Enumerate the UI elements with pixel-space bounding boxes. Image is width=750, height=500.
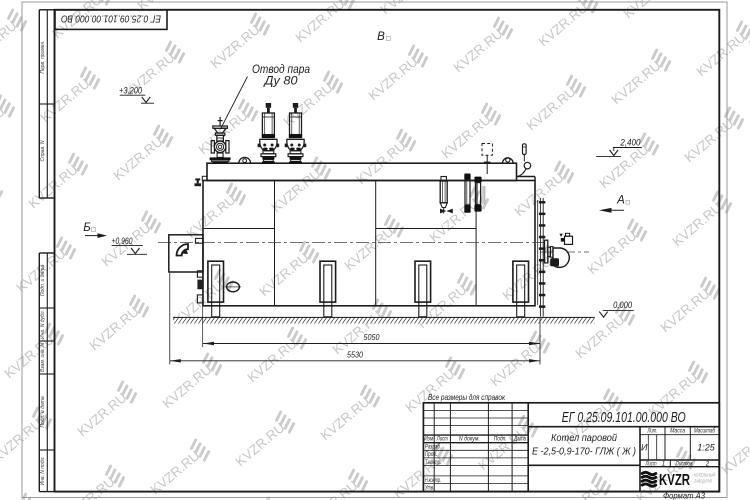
svg-text:KVZR.RU: KVZR.RU (403, 366, 458, 416)
svg-text:KVZR.RU: KVZR.RU (609, 58, 664, 108)
svg-text:Взам. инв. N: Взам. инв. N (40, 343, 46, 373)
svg-text:KVZR.RU: KVZR.RU (488, 340, 543, 390)
svg-text:KVZR.RU: KVZR.RU (585, 228, 640, 278)
svg-text:KVZR.RU: KVZR.RU (38, 76, 93, 126)
svg-text:KVZR.RU: KVZR.RU (719, 428, 750, 478)
svg-text:Е -2,5-0,9-170- ГЛЖ ( Ж ): Е -2,5-0,9-170- ГЛЖ ( Ж ) (532, 446, 636, 458)
svg-text:KVZR.RU: KVZR.RU (476, 424, 531, 474)
svg-text:KVZR.RU: KVZR.RU (26, 162, 81, 212)
svg-text:Б: Б (83, 222, 91, 234)
svg-text:KVZR.RU: KVZR.RU (427, 196, 482, 246)
svg-text:Подп. и дата: Подп. и дата (40, 396, 46, 428)
svg-text:Инв. N подл.: Инв. N подл. (40, 456, 46, 485)
svg-text:Отвод пара: Отвод пара (252, 64, 310, 76)
svg-text:2: 2 (705, 460, 710, 467)
svg-text:Листов: Листов (675, 460, 693, 467)
svg-text:Н.контр.: Н.контр. (425, 477, 441, 484)
svg-text:KVZR.RU: KVZR.RU (670, 200, 725, 250)
svg-text:KVZR.RU: KVZR.RU (160, 362, 215, 412)
svg-text:KVZR.RU: KVZR.RU (682, 116, 737, 166)
svg-text:КОТЕЛЬНЫЙ: КОТЕЛЬНЫЙ (694, 471, 716, 478)
svg-text:N докум.: N докум. (459, 435, 480, 443)
svg-text:KVZR.RU: KVZR.RU (439, 112, 494, 162)
svg-text:KVZR.RU: KVZR.RU (524, 84, 579, 134)
svg-text:KVZR.RU: KVZR.RU (451, 26, 506, 76)
svg-text:KVZR.RU: KVZR.RU (63, 474, 118, 500)
svg-text:Пров.: Пров. (425, 451, 437, 458)
svg-text:1: 1 (662, 460, 665, 467)
svg-text:Лит.: Лит. (647, 428, 658, 435)
svg-text:KVZR.RU: KVZR.RU (87, 304, 142, 354)
svg-text:KVZR.RU: KVZR.RU (293, 0, 348, 45)
svg-text:А: А (616, 195, 625, 207)
svg-text:KVZR: KVZR (659, 472, 690, 489)
svg-text:KVZR.RU: KVZR.RU (378, 0, 433, 17)
svg-text:Разраб.: Разраб. (425, 443, 441, 451)
svg-text:Все размеры для справок: Все размеры для справок (428, 393, 506, 402)
svg-text:5530: 5530 (347, 349, 363, 359)
svg-text:Утв.: Утв. (424, 484, 434, 491)
svg-text:Изм: Изм (424, 437, 433, 443)
svg-text:KVZR.RU: KVZR.RU (111, 134, 166, 184)
svg-text:Перв. примен.: Перв. примен. (40, 40, 46, 73)
svg-text:KVZR.RU: KVZR.RU (75, 390, 130, 440)
svg-text:ЕГ 0.25.09.101.00.000 ВО: ЕГ 0.25.09.101.00.000 ВО (61, 13, 161, 25)
svg-text:KVZR.RU: KVZR.RU (342, 224, 397, 274)
svg-text:ЗАВОД РЭП: ЗАВОД РЭП (694, 479, 712, 484)
svg-text:KVZR.RU: KVZR.RU (658, 286, 713, 336)
svg-text:Подп. и дата: Подп. и дата (40, 265, 46, 297)
svg-text:KVZR.RU: KVZR.RU (694, 30, 749, 80)
svg-text:KVZR.RU: KVZR.RU (536, 0, 591, 49)
svg-text:ЕГ 0.25.09.101.00.000 ВО: ЕГ 0.25.09.101.00.000 ВО (562, 409, 686, 426)
svg-text:0,000: 0,000 (613, 300, 633, 311)
svg-text:Инв. N дубл.: Инв. N дубл. (40, 310, 46, 339)
svg-text:KVZR.RU: KVZR.RU (269, 166, 324, 216)
svg-text:Справ. N: Справ. N (40, 140, 46, 161)
svg-text:Лист: Лист (436, 437, 448, 443)
svg-text:KVZR.RU: KVZR.RU (233, 420, 288, 470)
svg-text:5050: 5050 (364, 332, 380, 342)
svg-text:И: И (641, 443, 648, 453)
svg-text:Котел паровой: Котел паровой (551, 432, 617, 444)
svg-text:KVZR.RU: KVZR.RU (318, 394, 373, 444)
svg-text:KVZR.RU: KVZR.RU (148, 448, 203, 498)
svg-text:KVZR.RU: KVZR.RU (597, 142, 652, 192)
svg-text:В: В (377, 31, 385, 43)
svg-text:Формат А3: Формат А3 (663, 491, 705, 500)
svg-text:Т.контр.: Т.контр. (425, 459, 441, 466)
svg-text:Подп.: Подп. (494, 435, 507, 443)
svg-text:Ду 80: Ду 80 (262, 76, 298, 88)
svg-text:Масштаб: Масштаб (694, 428, 715, 435)
svg-text:Лист: Лист (645, 460, 657, 467)
svg-text:KVZR.RU: KVZR.RU (306, 478, 361, 500)
svg-text:KVZR.RU: KVZR.RU (366, 54, 421, 104)
svg-text:KVZR.RU: KVZR.RU (257, 250, 312, 300)
svg-text:Масса: Масса (670, 428, 685, 435)
svg-text:Дата: Дата (513, 436, 526, 443)
svg-text:1:25: 1:25 (697, 443, 716, 453)
svg-text:KVZR.RU: KVZR.RU (184, 192, 239, 242)
